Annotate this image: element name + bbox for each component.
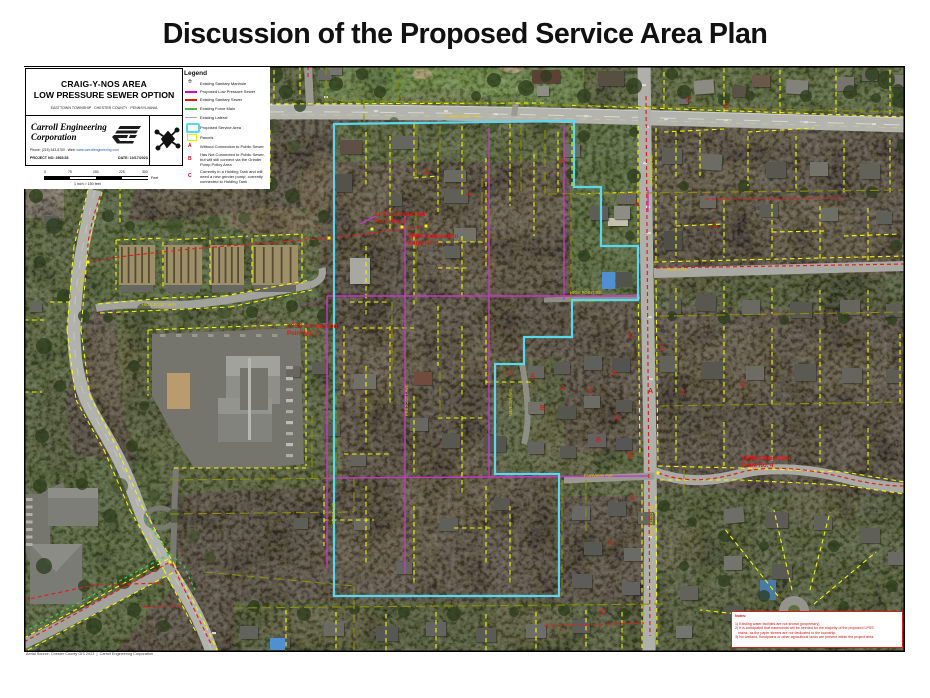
svg-text:A: A bbox=[560, 385, 565, 392]
svg-text:MERCER AVE: MERCER AVE bbox=[508, 389, 513, 416]
svg-text:C: C bbox=[724, 103, 729, 110]
svg-text:A: A bbox=[608, 540, 613, 547]
svg-text:LPSS Connection: LPSS Connection bbox=[742, 456, 793, 462]
svg-text:A: A bbox=[712, 223, 717, 230]
svg-text:Point No. 4: Point No. 4 bbox=[742, 463, 774, 469]
svg-text:HIGH POINT RD: HIGH POINT RD bbox=[570, 290, 602, 295]
svg-text:C: C bbox=[628, 333, 633, 340]
svg-text:WATERLOO RD: WATERLOO RD bbox=[649, 155, 654, 186]
svg-text:LPSS Connection: LPSS Connection bbox=[375, 212, 426, 218]
svg-text:SUGARTOWN RD: SUGARTOWN RD bbox=[444, 114, 479, 119]
svg-text:Point No. 2: Point No. 2 bbox=[375, 219, 407, 225]
svg-text:A: A bbox=[660, 345, 665, 352]
svg-text:A: A bbox=[612, 370, 617, 377]
svg-text:B: B bbox=[540, 405, 545, 412]
svg-text:A: A bbox=[530, 373, 535, 380]
svg-text:A: A bbox=[648, 388, 653, 395]
svg-text:C: C bbox=[686, 97, 691, 104]
svg-text:ASHLEY RD: ASHLEY RD bbox=[664, 267, 688, 272]
svg-text:A: A bbox=[614, 415, 619, 422]
svg-text:A: A bbox=[424, 169, 429, 176]
svg-text:Point No. 1: Point No. 1 bbox=[408, 241, 440, 247]
svg-text:B: B bbox=[628, 452, 633, 459]
svg-text:A: A bbox=[560, 157, 565, 164]
svg-text:A: A bbox=[630, 495, 635, 502]
svg-text:A: A bbox=[588, 388, 593, 395]
svg-text:A: A bbox=[680, 390, 685, 397]
svg-text:A: A bbox=[466, 191, 471, 198]
svg-text:LPSS Connection: LPSS Connection bbox=[408, 234, 459, 240]
svg-text:LPSS Connection: LPSS Connection bbox=[287, 324, 338, 330]
svg-text:B: B bbox=[596, 437, 601, 444]
svg-text:FAIRVIEW AVE: FAIRVIEW AVE bbox=[584, 473, 613, 478]
svg-text:A: A bbox=[634, 201, 639, 208]
svg-text:WATERLOO RD: WATERLOO RD bbox=[649, 505, 654, 536]
svg-text:C: C bbox=[600, 609, 605, 616]
svg-text:A: A bbox=[508, 370, 513, 377]
svg-text:Point No. 3: Point No. 3 bbox=[287, 331, 319, 337]
svg-text:A: A bbox=[740, 381, 745, 388]
svg-text:FIRST AVE: FIRST AVE bbox=[331, 503, 336, 524]
svg-text:PRESCOTT AVE: PRESCOTT AVE bbox=[404, 384, 409, 416]
svg-text:HIGH POINT WAY: HIGH POINT WAY bbox=[142, 302, 177, 307]
